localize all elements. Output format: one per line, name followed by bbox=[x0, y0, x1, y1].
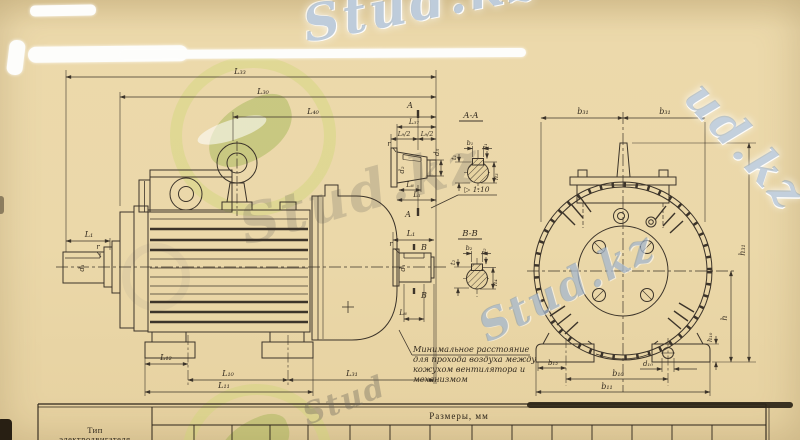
dim-label-l8-top: L₈ bbox=[405, 181, 414, 189]
dim-label-h1: h₁ bbox=[481, 143, 489, 150]
table-type-col-line2: электродвигателя bbox=[59, 434, 130, 440]
dim-label-b2: b₂ bbox=[466, 244, 473, 252]
dim-label-t1: t₁ bbox=[450, 155, 458, 160]
dim-label-b31-left: b₃₁ bbox=[577, 107, 589, 116]
section-aa-title: A-A bbox=[462, 111, 478, 121]
note-line-4: механизмом bbox=[413, 374, 468, 384]
side-view-dimensions bbox=[66, 70, 444, 396]
dim-label-h: h bbox=[720, 315, 729, 320]
section-mark-b-top: B bbox=[420, 243, 427, 252]
dim-label-b12: b₁₂ bbox=[548, 359, 558, 367]
dim-label-l31: L₃₁ bbox=[345, 369, 358, 378]
dim-label-d1-rear: d₁ bbox=[399, 264, 407, 271]
dim-label-l9-half-left: L₉/2 bbox=[397, 131, 411, 138]
dim-label-l8-rear: L₈ bbox=[398, 309, 407, 317]
note-line-2: для прохода воздуха между bbox=[413, 354, 536, 364]
dim-label-d10: d₁₀ bbox=[643, 360, 653, 368]
end-view bbox=[527, 112, 737, 392]
note-line-3: кожухом вентилятора и bbox=[413, 364, 525, 374]
dim-label-h31: h₃₁ bbox=[738, 244, 747, 256]
taper-note: ▷ 1:10 bbox=[465, 185, 490, 194]
dim-label-r-left: r bbox=[96, 243, 100, 251]
dim-label-l1-rear: L₁ bbox=[406, 229, 416, 238]
section-bb-title: B-B bbox=[461, 229, 478, 239]
note-line-1: Минимальное расстояние bbox=[412, 344, 530, 354]
ink-smudge bbox=[0, 419, 12, 440]
whiteout-streak-top bbox=[30, 4, 96, 16]
dim-label-b31-right: b₃₁ bbox=[659, 107, 671, 116]
dim-label-l1-left: L₁ bbox=[84, 230, 94, 239]
dim-label-b1: b₁ bbox=[467, 139, 474, 147]
table-sizes-header: Размеры, мм bbox=[429, 411, 489, 421]
dim-label-l40: L₄₀ bbox=[306, 107, 320, 116]
dim-label-h10: h₁₀ bbox=[706, 332, 714, 342]
dim-label-l33: L₃₃ bbox=[233, 67, 246, 76]
motor-drawing: L₃₃ L₃₀ L₄₀ L₃₇ L₉/2 L₉/2 r A A d₂ d₅ L₈… bbox=[0, 0, 800, 440]
ink-smudge bbox=[0, 196, 4, 214]
dim-label-l12: L₁₂ bbox=[159, 353, 172, 362]
end-view-dimensions bbox=[536, 118, 756, 396]
section-bb bbox=[454, 239, 496, 297]
section-mark-a-top: A bbox=[406, 101, 413, 110]
dim-label-l9-half-right: L₉/2 bbox=[420, 131, 434, 138]
dim-label-d1-left: d₁ bbox=[78, 264, 86, 271]
dim-label-l30: L₃₀ bbox=[256, 87, 270, 96]
dim-label-d5: d₅ bbox=[433, 149, 441, 156]
dim-label-l11: L₁₁ bbox=[217, 381, 230, 390]
section-mark-b-bottom: B bbox=[420, 291, 427, 300]
dim-label-h4: h₄ bbox=[491, 279, 499, 286]
min-distance-note: Минимальное расстояние для прохода возду… bbox=[412, 344, 536, 384]
dim-label-h3: h₃ bbox=[492, 173, 500, 180]
dim-label-l10: L₁₀ bbox=[221, 369, 235, 378]
dim-label-l1-top: L₁ bbox=[412, 191, 421, 199]
dim-label-d2: d₂ bbox=[398, 166, 406, 173]
spec-table: Тип электродвигателя Размеры, мм bbox=[38, 402, 793, 440]
dim-label-b11: b₁₁ bbox=[601, 382, 613, 391]
scanned-catalog-page: Stud.kz bbox=[0, 0, 800, 440]
dim-label-l37: L₃₇ bbox=[408, 118, 419, 126]
section-mark-a-bottom: A bbox=[404, 210, 411, 219]
dim-label-b10: b₁₀ bbox=[612, 369, 624, 378]
dim-label-t2: t₂ bbox=[449, 259, 457, 265]
dim-label-h2: h₂ bbox=[480, 248, 488, 255]
